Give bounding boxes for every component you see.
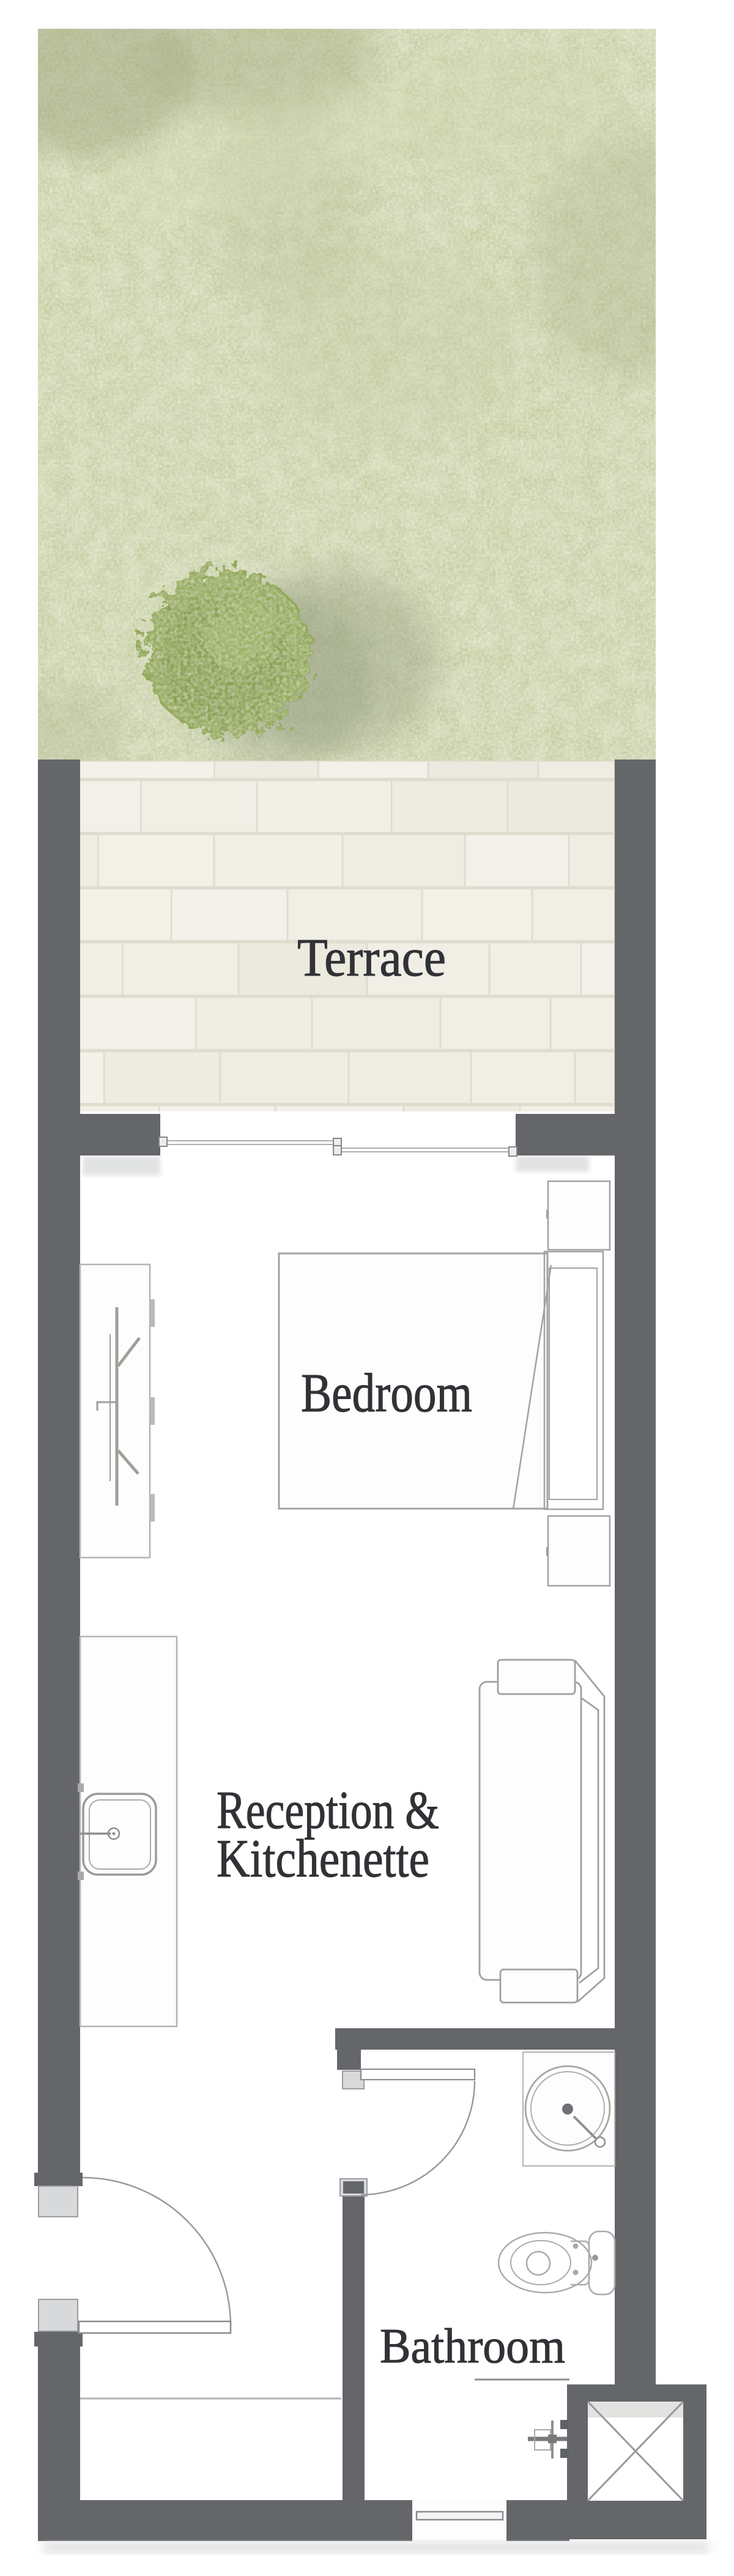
svg-text:Bathroom: Bathroom: [380, 2320, 565, 2373]
svg-text:Kitchenette: Kitchenette: [217, 1829, 429, 1889]
svg-text:Bedroom: Bedroom: [301, 1363, 472, 1424]
svg-text:Terrace: Terrace: [297, 928, 446, 988]
